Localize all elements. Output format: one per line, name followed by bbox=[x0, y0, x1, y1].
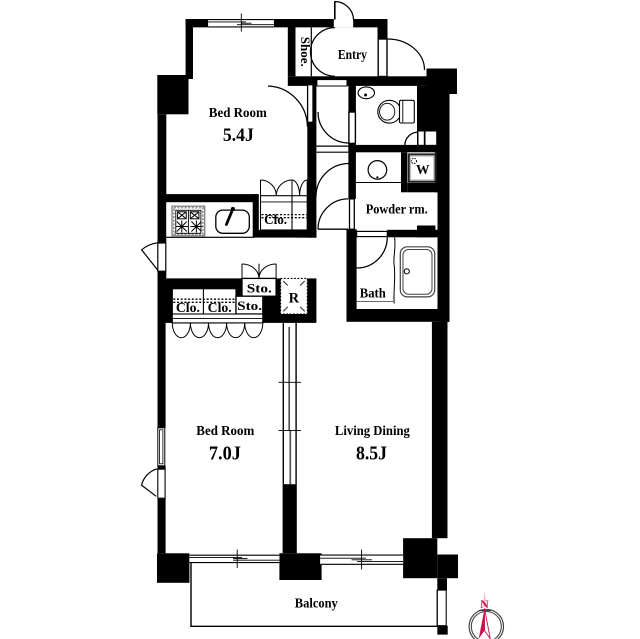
svg-text:5.4J: 5.4J bbox=[223, 125, 254, 146]
svg-text:Sto.: Sto. bbox=[237, 298, 262, 313]
svg-text:Living Dining: Living Dining bbox=[335, 424, 410, 439]
svg-text:7.0J: 7.0J bbox=[209, 442, 241, 464]
svg-text:Bed Room: Bed Room bbox=[209, 106, 267, 121]
svg-text:Bed Room: Bed Room bbox=[196, 424, 254, 439]
svg-text:8.5J: 8.5J bbox=[356, 442, 387, 464]
svg-text:R: R bbox=[289, 290, 300, 306]
svg-text:Powder rm.: Powder rm. bbox=[366, 202, 428, 217]
svg-text:Sto.: Sto. bbox=[247, 280, 272, 295]
svg-text:W: W bbox=[416, 162, 430, 177]
svg-text:Shoe.: Shoe. bbox=[298, 37, 313, 67]
svg-text:Clo.: Clo. bbox=[176, 300, 200, 315]
svg-text:Clo.: Clo. bbox=[264, 212, 287, 227]
svg-text:Bath: Bath bbox=[360, 286, 386, 301]
svg-text:Clo.: Clo. bbox=[208, 300, 232, 315]
svg-text:Balcony: Balcony bbox=[295, 595, 338, 610]
svg-text:Entry: Entry bbox=[338, 48, 367, 63]
